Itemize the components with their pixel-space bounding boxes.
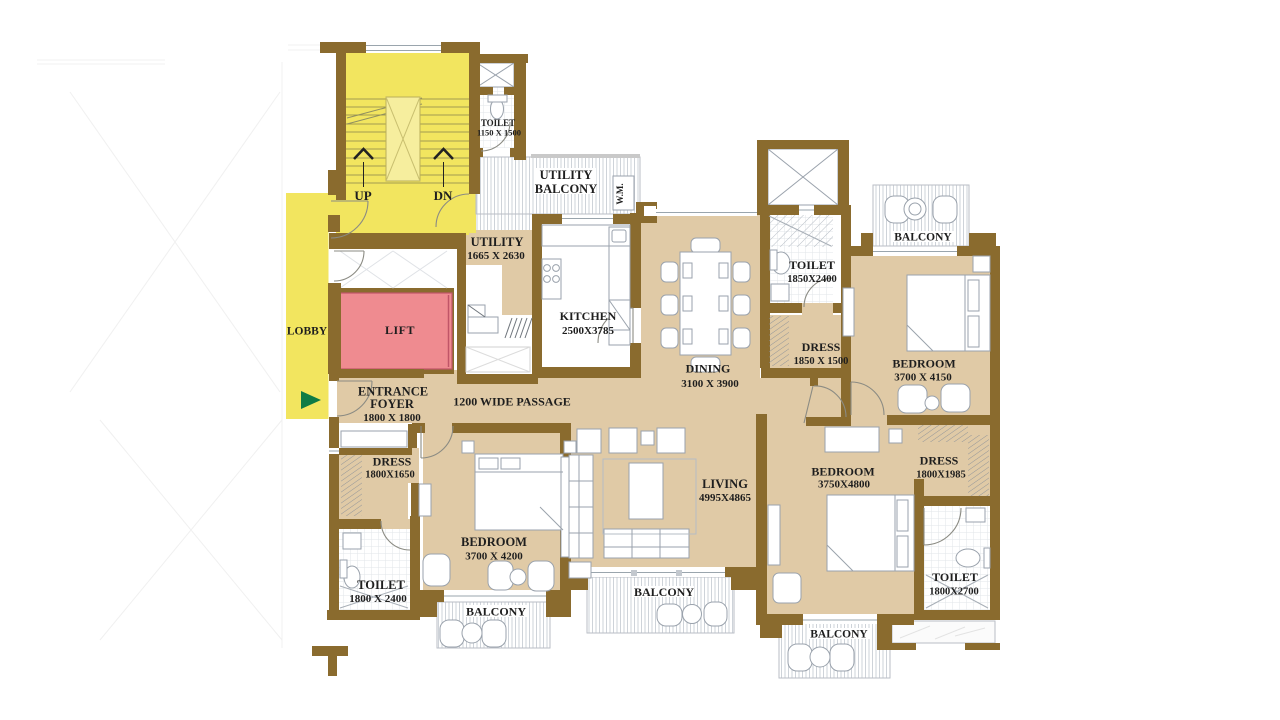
svg-text:1800X1650: 1800X1650	[365, 470, 415, 481]
svg-text:3100 X 3900: 3100 X 3900	[681, 378, 739, 390]
svg-text:BALCONY: BALCONY	[634, 585, 694, 599]
svg-text:BEDROOM: BEDROOM	[461, 535, 527, 549]
svg-text:UTILITY: UTILITY	[540, 168, 593, 182]
svg-text:UTILITY: UTILITY	[471, 235, 524, 249]
svg-text:1850X2400: 1850X2400	[787, 274, 837, 285]
svg-text:LIFT: LIFT	[385, 323, 415, 337]
svg-text:1800 X 2400: 1800 X 2400	[349, 593, 407, 605]
svg-text:1850 X 1500: 1850 X 1500	[794, 356, 849, 367]
svg-text:1800X2700: 1800X2700	[929, 587, 979, 598]
svg-text:1150 X 1500: 1150 X 1500	[477, 128, 521, 138]
svg-text:W.M.: W.M.	[615, 183, 625, 204]
svg-text:1800 X 1800: 1800 X 1800	[363, 412, 421, 424]
svg-text:BALCONY: BALCONY	[894, 232, 952, 244]
svg-text:DRESS: DRESS	[802, 340, 841, 354]
svg-text:TOILET: TOILET	[357, 578, 405, 592]
svg-text:DINING: DINING	[686, 362, 731, 376]
svg-text:LOBBY: LOBBY	[287, 326, 328, 338]
svg-text:3700 X 4150: 3700 X 4150	[894, 372, 952, 384]
svg-text:DRESS: DRESS	[920, 454, 959, 468]
svg-text:LIVING: LIVING	[702, 477, 748, 491]
svg-text:1665 X 2630: 1665 X 2630	[467, 250, 525, 262]
svg-text:BEDROOM: BEDROOM	[811, 465, 874, 479]
svg-text:BALCONY: BALCONY	[535, 182, 598, 196]
svg-text:DN: DN	[434, 188, 453, 203]
svg-text:TOILET: TOILET	[932, 570, 978, 584]
svg-text:TOILET: TOILET	[481, 118, 515, 128]
svg-text:1800X1985: 1800X1985	[916, 470, 966, 481]
svg-text:BALCONY: BALCONY	[810, 629, 868, 641]
svg-text:UP: UP	[354, 188, 371, 203]
svg-text:BEDROOM: BEDROOM	[892, 357, 955, 371]
svg-text:4995X4865: 4995X4865	[699, 492, 751, 504]
svg-text:2500X3785: 2500X3785	[562, 325, 614, 337]
svg-text:DRESS: DRESS	[373, 455, 412, 469]
svg-text:BALCONY: BALCONY	[466, 605, 526, 619]
svg-text:KITCHEN: KITCHEN	[560, 309, 617, 323]
svg-text:3750X4800: 3750X4800	[818, 479, 870, 491]
svg-text:TOILET: TOILET	[789, 258, 835, 272]
svg-text:3700 X 4200: 3700 X 4200	[465, 551, 523, 563]
svg-text:FOYER: FOYER	[370, 397, 415, 411]
svg-text:1200 WIDE PASSAGE: 1200 WIDE PASSAGE	[453, 395, 571, 409]
